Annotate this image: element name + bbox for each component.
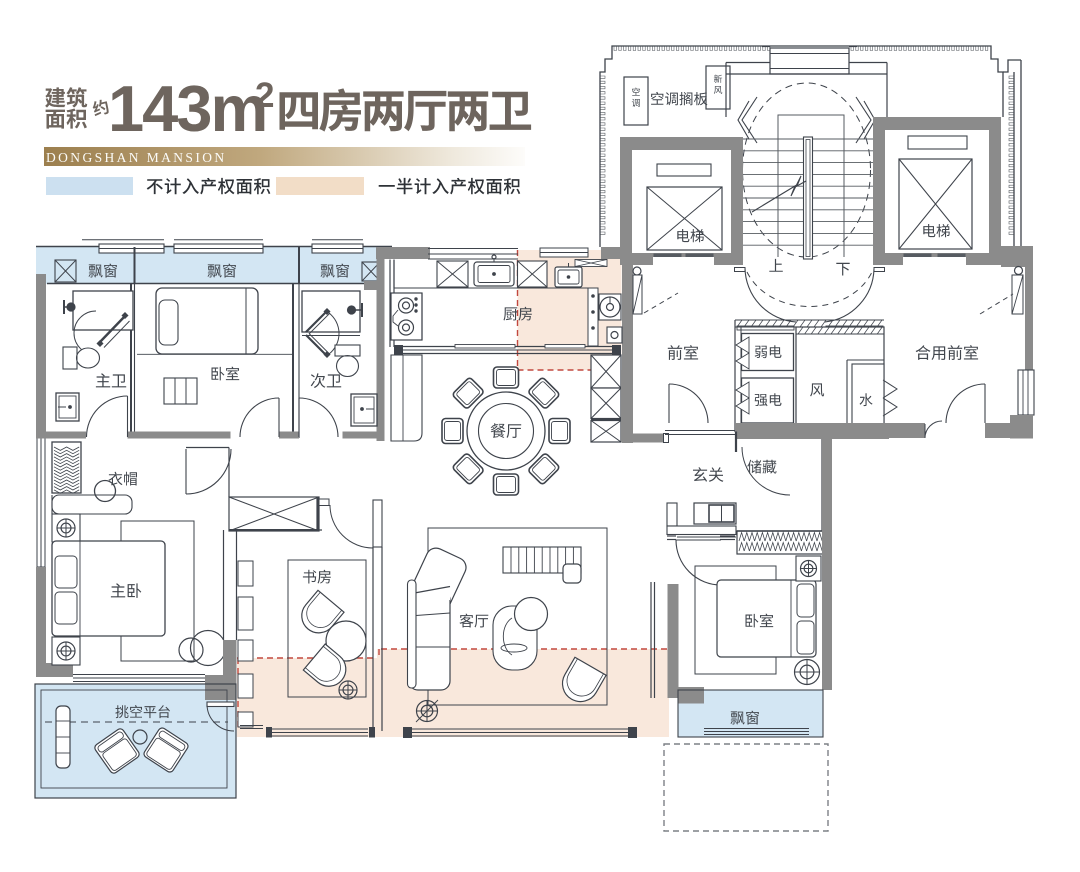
svg-text:2: 2 <box>255 76 274 115</box>
svg-text:DONGSHAN MANSION: DONGSHAN MANSION <box>46 150 227 165</box>
svg-text:143m: 143m <box>108 72 266 145</box>
